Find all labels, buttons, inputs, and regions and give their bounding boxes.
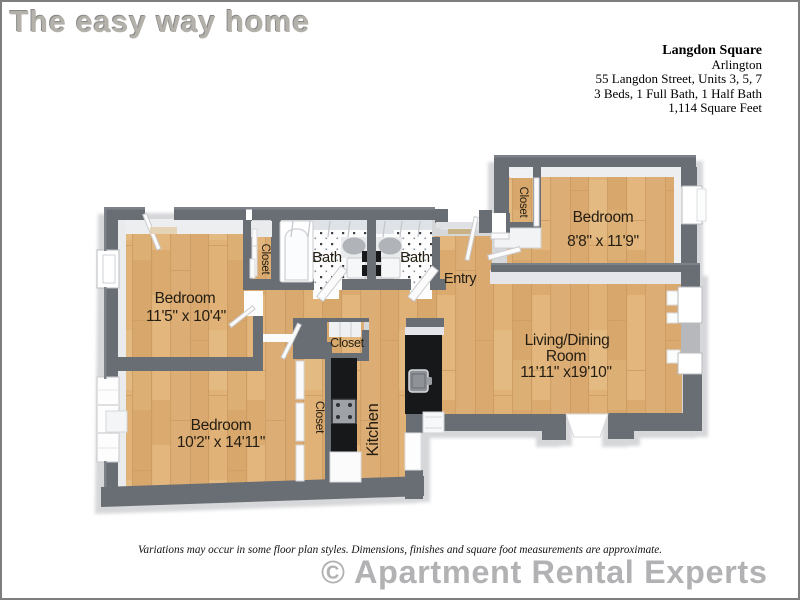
svg-text:Kitchen: Kitchen <box>364 403 382 456</box>
svg-text:Entry: Entry <box>444 271 477 287</box>
svg-text:Closet: Closet <box>259 244 271 276</box>
svg-text:Closet: Closet <box>313 401 327 434</box>
svg-text:11'5" x 10'4": 11'5" x 10'4" <box>146 308 226 325</box>
svg-text:Bedroom: Bedroom <box>155 290 216 307</box>
svg-text:Room: Room <box>546 348 586 365</box>
svg-text:Bedroom: Bedroom <box>573 209 634 226</box>
svg-text:Bath: Bath <box>312 249 342 266</box>
svg-text:Closet: Closet <box>517 187 529 219</box>
svg-text:8'8" x 11'9": 8'8" x 11'9" <box>567 233 639 250</box>
svg-text:11'11" x19'10": 11'11" x19'10" <box>520 364 611 381</box>
svg-text:Living/Dining: Living/Dining <box>525 332 610 349</box>
svg-text:Bedroom: Bedroom <box>191 417 252 434</box>
svg-text:10'2" x 14'11": 10'2" x 14'11" <box>177 434 265 451</box>
svg-text:Bath: Bath <box>400 249 430 266</box>
svg-text:Closet: Closet <box>330 336 364 350</box>
